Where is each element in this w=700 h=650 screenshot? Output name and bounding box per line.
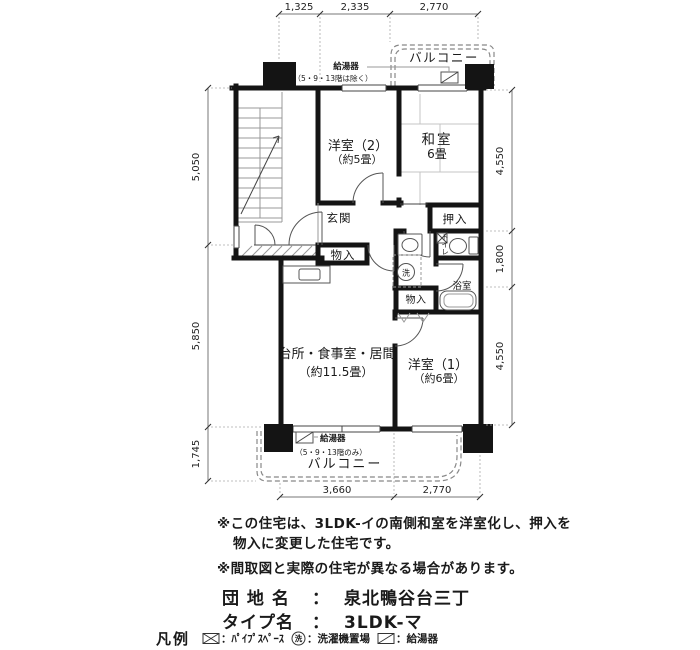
bath-label: 浴室 [452, 280, 471, 292]
dim-top-1: 1,325 [285, 2, 314, 13]
entrance-double-door [255, 212, 322, 245]
oshiire-label: 押入 [443, 212, 468, 226]
bathtub [440, 291, 476, 310]
genkan-label: 玄関 [327, 211, 352, 225]
danchi-name-row: 団 地 名 ： 泉北鴨谷台三丁 [222, 584, 470, 609]
legend-pipe-space-label: ：ﾊﾟｲﾌﾟｽﾍﾟｰｽ [221, 631, 284, 646]
legend: 凡例 ：ﾊﾟｲﾌﾟｽﾍﾟｰｽ 洗 ：洗濯機置場 ：給湯器 [156, 628, 445, 649]
ldk-label: 台所・食事室・居間 [278, 346, 395, 362]
remodel-note-line2: 物入に変更した住宅です。 [217, 534, 571, 554]
water-heater-top-label: 給湯器 [333, 61, 359, 72]
washitsu-label: 和室 [422, 131, 453, 148]
floor-plan-page: { "plan": { "dims": { "top": ["1,325", "… [0, 0, 700, 650]
entrance-porch-hatch [242, 245, 322, 256]
laundry-legend-icon: 洗 [291, 631, 306, 646]
room-labels: バルコニー 洋室（2） （約5畳） 和室 6畳 玄関 押入 物入 トイレ 洗 浴… [278, 50, 478, 472]
bedroom1-label: 洋室（1） [408, 357, 468, 373]
legend-pipe-space: ：ﾊﾟｲﾌﾟｽﾍﾟｰｽ [202, 631, 284, 646]
laundry-legend-glyph: 洗 [295, 633, 303, 643]
legend-laundry: 洗 ：洗濯機置場 [291, 631, 370, 646]
toilet-fixture [450, 237, 479, 254]
remodel-note: ※この住宅は、3LDK-イの南側和室を洋室化し、押入を 物入に変更した住宅です。 [217, 514, 571, 554]
balcony-bottom-label: バルコニー [308, 457, 383, 472]
dim-right-1: 4,550 [495, 147, 506, 176]
dim-left-3: 1,745 [191, 440, 202, 469]
bedroom1-door [395, 318, 423, 346]
dim-top-3: 2,770 [420, 2, 449, 13]
water-heater-bottom-label: 給湯器 [320, 433, 346, 444]
legend-title: 凡例 [156, 628, 190, 649]
danchi-name-value: 泉北鴨谷台三丁 [344, 584, 470, 609]
bedroom1-size: （約6畳） [414, 371, 465, 385]
dim-top-2: 2,335 [341, 2, 370, 13]
legend-water-heater: ：給湯器 [377, 631, 438, 646]
kitchen-counter [283, 266, 330, 283]
danchi-name-label: 団 地 名 [222, 584, 312, 609]
dim-bottom-1: 3,660 [323, 485, 352, 496]
dim-right-2: 1,800 [495, 245, 506, 274]
pipe-space-legend-icon [202, 632, 220, 645]
laundry-glyph-label: 洗 [402, 268, 410, 278]
danchi-colon: ： [312, 584, 330, 609]
dim-left-2: 5,850 [191, 322, 202, 351]
dim-bottom-2: 2,770 [423, 485, 452, 496]
washitsu-size: 6畳 [427, 147, 447, 161]
remodel-note-line1: ※この住宅は、3LDK-イの南側和室を洋室化し、押入を [217, 514, 571, 534]
dim-right-3: 4,550 [495, 342, 506, 371]
disclaimer-note: ※間取図と実際の住宅が異なる場合があります。 [217, 557, 523, 577]
water-heater-top-note: （5・9・13階は除く） [293, 73, 372, 83]
ldk-size: （約11.5畳） [299, 364, 374, 379]
toilet-label: トイレ [441, 233, 450, 256]
bedroom2-door [353, 173, 383, 203]
monoire-hall-label: 物入 [331, 248, 356, 262]
bedroom2-size: （約5畳） [332, 152, 383, 166]
washbasin [398, 234, 422, 255]
water-heater-legend-icon [377, 632, 395, 645]
ldk-door [368, 245, 394, 271]
water-heater-top-icon [367, 67, 458, 83]
legend-water-heater-label: ：給湯器 [396, 631, 438, 646]
stairs [238, 92, 282, 222]
dim-left-1: 5,050 [191, 153, 202, 182]
legend-laundry-label: ：洗濯機置場 [307, 631, 370, 646]
water-heater-bottom-note: （5・9・13階のみ） [295, 447, 367, 457]
floor-plan: 1,325 2,335 2,770 5,050 5,850 1,745 4,55… [0, 0, 700, 510]
bedroom2-label: 洋室（2） [328, 138, 388, 154]
balcony-top-label: バルコニー [409, 50, 479, 65]
monoire-lower-label: 物入 [406, 293, 427, 306]
